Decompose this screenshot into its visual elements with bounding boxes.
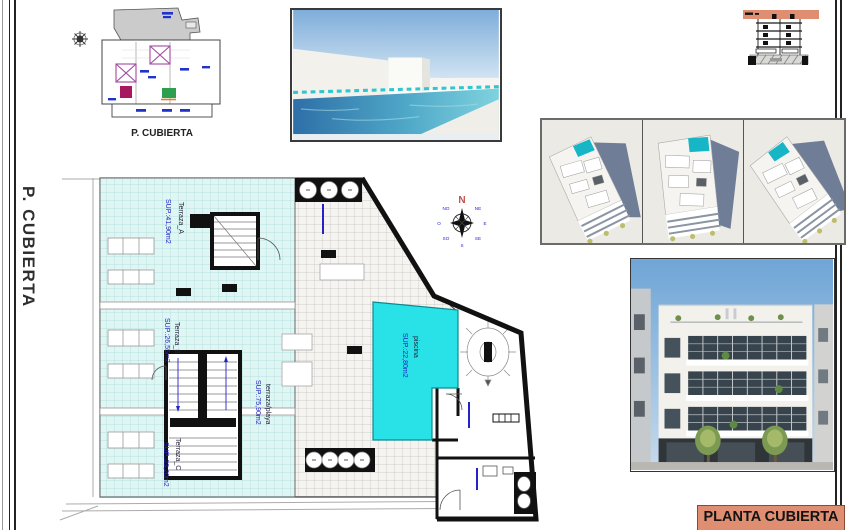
sidewalk [631,462,833,470]
roof-level-highlight [743,10,819,19]
frame-line-right-1 [835,0,837,530]
equipment-band-bottom [305,448,375,472]
pool-render [290,8,502,142]
side-label: P. CUBIERTA [18,186,38,308]
section-ground [748,55,808,65]
room-area-terraza-c: SUP.:23,20m2 [162,442,169,487]
keyplan-roof-mass [114,8,200,42]
frame-line-left-1 [9,0,10,530]
roof-floor-plan: piscina SUP.:22,80m2 [58,176,546,530]
section-linework [756,19,802,55]
vent-grille [493,414,519,422]
room-label-terraza-c: Terraza_C [174,438,181,470]
main-building [631,305,833,470]
pool-render-scene [292,10,500,140]
ground-floor [659,438,813,464]
axon-views [540,118,846,245]
axon2-pool [688,136,710,153]
right-neighbor-building [814,304,833,470]
left-neighbor-building [631,289,651,470]
bottom-strip [293,134,499,140]
sheet-title: PLANTA CUBIERTA [697,505,845,530]
facade-scene [631,259,833,470]
axon-view-1 [542,120,643,243]
balcony-band-1 [686,336,808,366]
section-diagram [742,3,824,73]
keyplan-caption: P. CUBIERTA [131,128,193,139]
party-wall-a-b [100,302,295,309]
equipment-band-top [295,178,362,202]
room-label-terraza-a: Terraza_A [177,202,184,234]
axon-view-3 [744,120,844,243]
room-area-piscina: SUP.:22,80m2 [401,333,408,378]
room-area-terraza-a: SUP.:41,90m2 [164,199,171,244]
room-label-terraza-b: Terraza_B [173,322,180,354]
frame-line-left-2 [14,0,16,530]
frame-line-right-2 [840,0,842,530]
axon-view-2 [643,120,744,243]
key-plan: P. CUBIERTA [62,6,257,146]
plan-sheet: P. CUBIERTA [0,0,850,530]
frame-line-outer-left [2,0,3,530]
left-window-column [665,338,681,429]
balcony-band-2 [686,371,808,401]
room-area-terraza-b: SUP.:26,55m2 [163,318,170,363]
center-wall-side [422,58,430,92]
mini-compass-icon [72,31,88,47]
room-label-piscina: piscina [412,336,419,358]
deck-micro-label [322,204,324,234]
room-area-terraza-playa: SUP.:75,90m2 [254,380,261,425]
room-label-terraza-playa: terraza/playa [264,384,271,425]
stair-newel [484,342,492,362]
facade-render [630,258,835,472]
